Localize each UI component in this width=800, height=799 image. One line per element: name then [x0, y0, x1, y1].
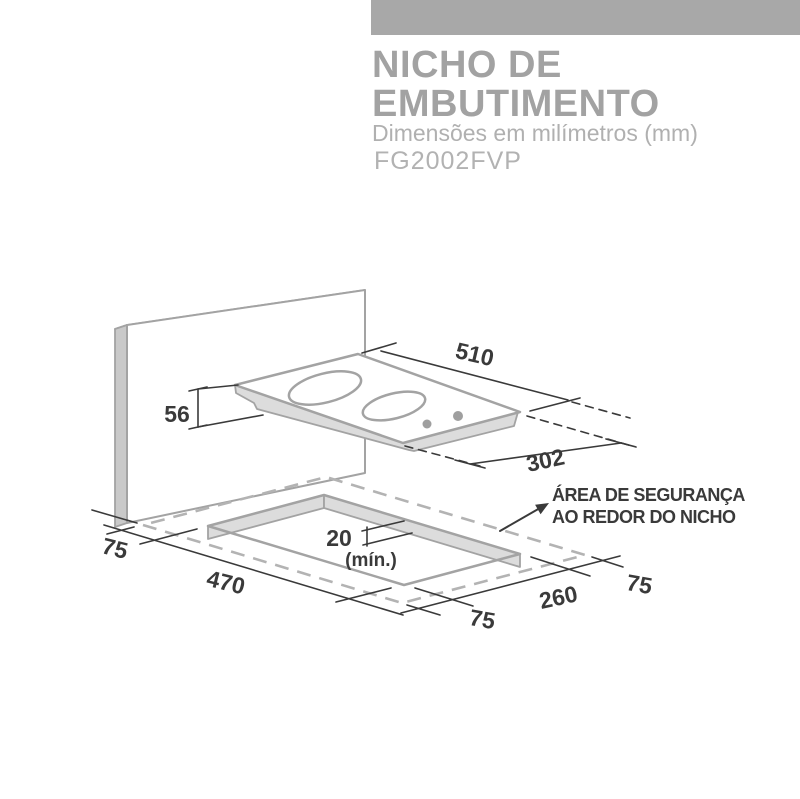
installation-diagram: 56 510 302 75 470 75 260 75	[0, 0, 800, 799]
dim-510-dash-continuation	[572, 402, 630, 418]
dim-margin-left-label: 75	[99, 533, 130, 564]
dim-line-front-right: 75 260 75	[401, 556, 654, 634]
dim-510-label: 510	[453, 337, 496, 371]
dim-510-ext-left	[362, 343, 396, 353]
control-dot-left	[423, 420, 432, 429]
dim-56-label: 56	[164, 401, 190, 427]
safety-note-line2: AO REDOR DO NICHO	[552, 507, 736, 527]
control-dot-right	[453, 411, 463, 421]
dim-niche-width-label: 470	[204, 565, 248, 600]
note-arrow-shaft	[500, 508, 540, 531]
niche-cutout	[208, 495, 520, 585]
dim-ext-niche-left	[140, 529, 197, 544]
dim-niche-depth-label: 260	[537, 580, 580, 613]
dim-ext-niche-front	[336, 588, 391, 602]
safety-note-line1: ÁREA DE SEGURANÇA	[552, 484, 745, 505]
dim-margin-right-label: 75	[625, 569, 655, 599]
wall-left-face	[115, 325, 127, 527]
dim-20-leader-bottom	[363, 533, 412, 545]
dim-302-label: 302	[524, 443, 567, 476]
dim-20-min-note: (mín.)	[345, 550, 397, 571]
dim-20-label: 20	[326, 525, 352, 551]
dim-margin-front-label: 75	[468, 604, 498, 634]
safety-note: ÁREA DE SEGURANÇA AO REDOR DO NICHO	[500, 484, 745, 531]
dim-510-ext-right	[530, 398, 580, 411]
